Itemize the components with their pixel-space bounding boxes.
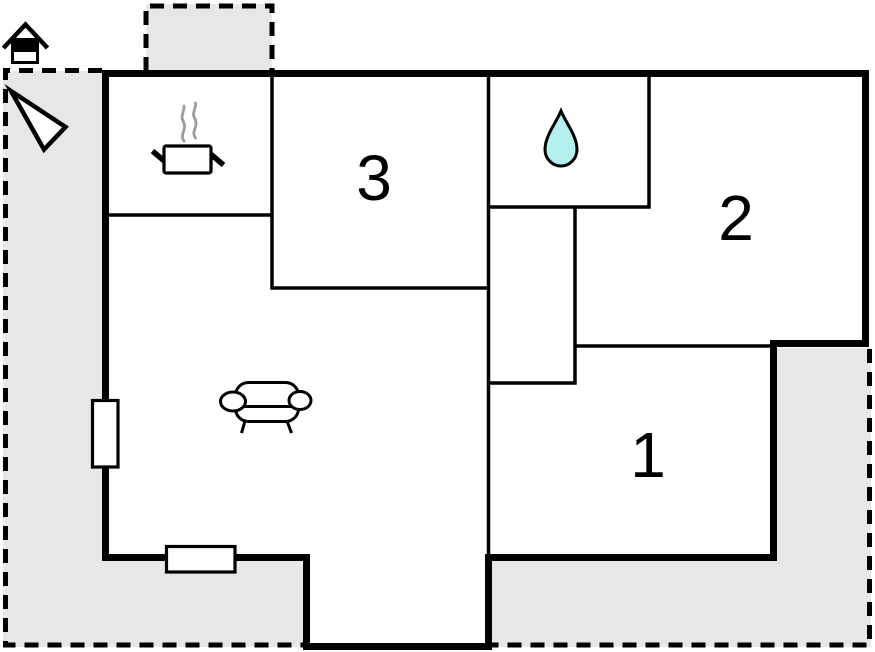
pot-body: [164, 146, 211, 173]
floor-plan: 3 2 1: [0, 0, 875, 652]
terrace-top: [146, 4, 272, 71]
terrace-right: [777, 348, 871, 561]
terrace-left: [3, 71, 102, 647]
house-icon-band: [13, 40, 38, 53]
room-3-label: 3: [356, 142, 392, 214]
window-left-wall: [93, 401, 119, 468]
sofa-armrest-left: [221, 392, 246, 411]
floor-plan-page: 3 2 1: [0, 0, 875, 652]
window-bottom-wall: [167, 547, 236, 573]
room-2-label: 2: [718, 182, 754, 254]
room-1-label: 1: [630, 419, 666, 491]
sofa-armrest-right: [289, 392, 311, 410]
